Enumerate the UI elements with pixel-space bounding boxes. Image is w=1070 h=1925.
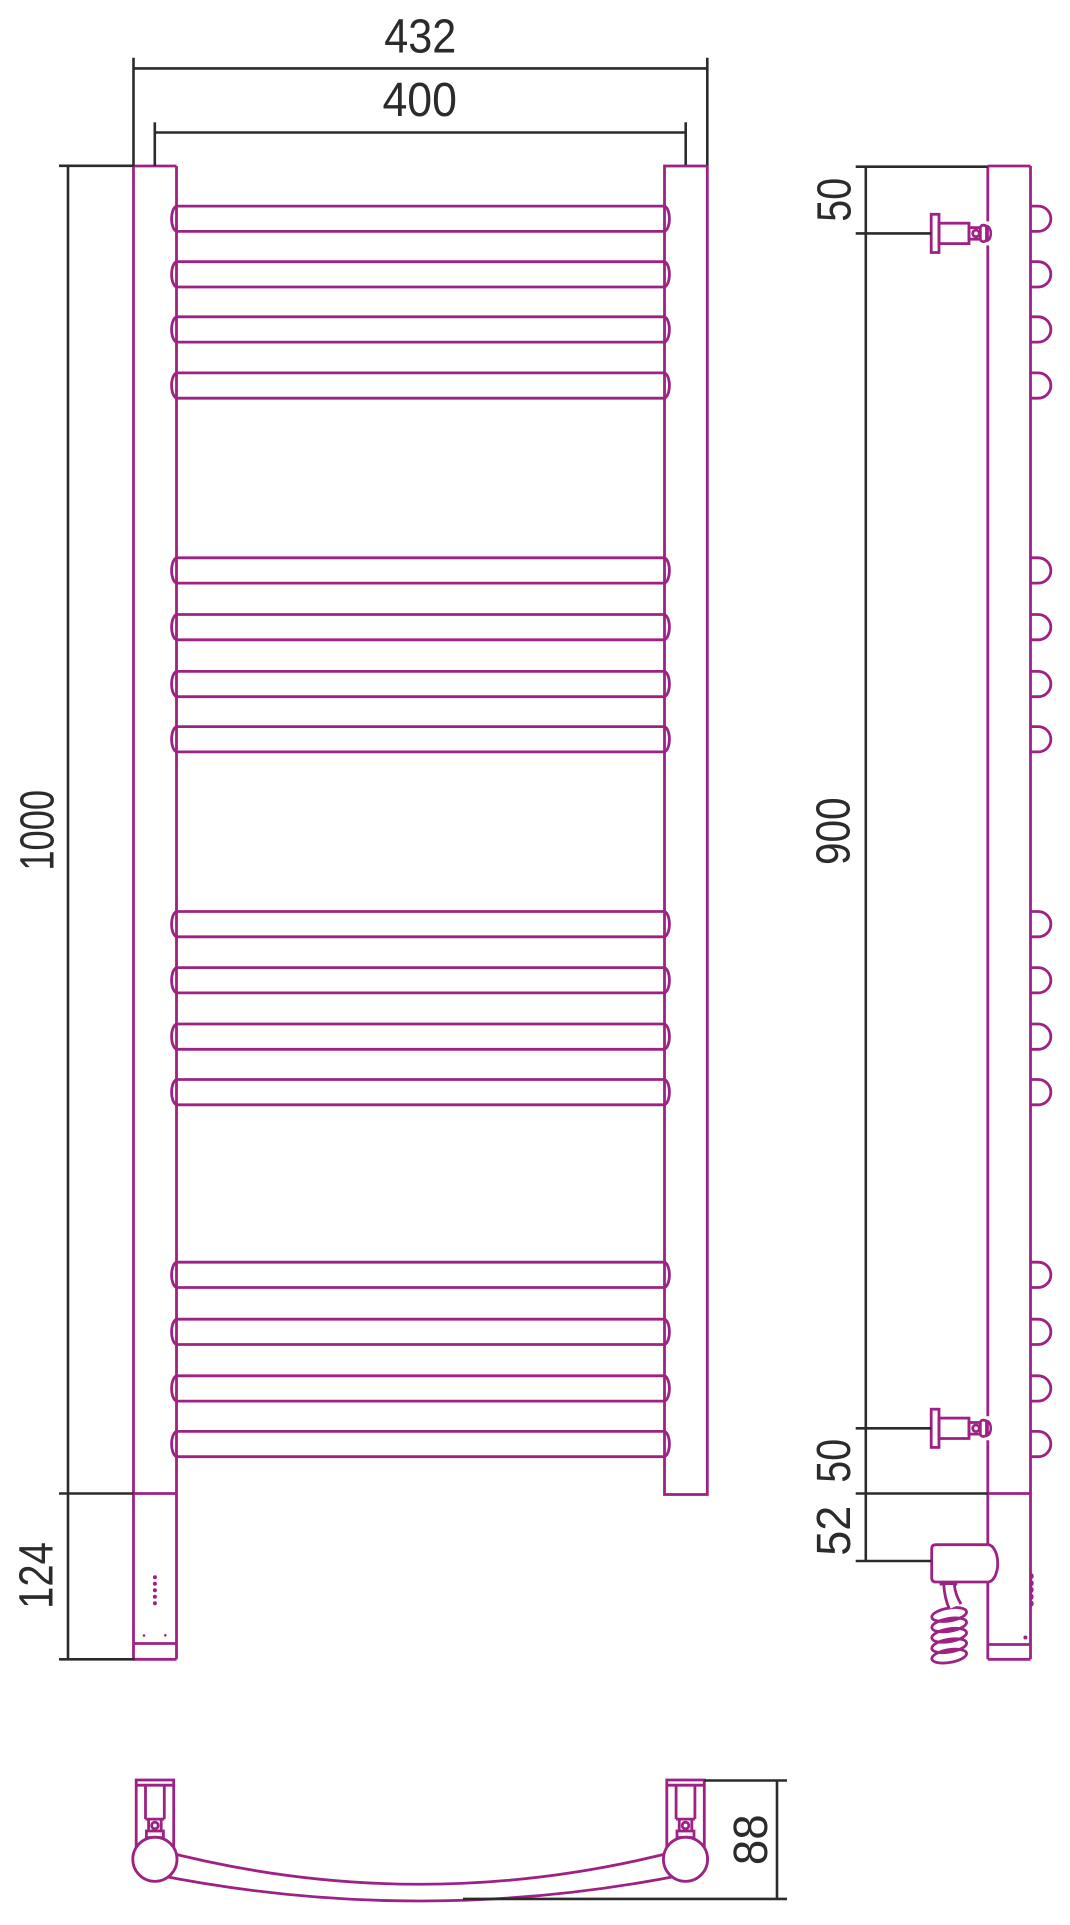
svg-text:124: 124 (10, 1542, 63, 1609)
svg-text:900: 900 (808, 797, 861, 865)
svg-text:400: 400 (382, 73, 456, 127)
svg-text:88: 88 (724, 1814, 777, 1865)
svg-text:50: 50 (808, 1439, 862, 1483)
svg-text:1000: 1000 (12, 790, 65, 871)
svg-text:50: 50 (808, 178, 862, 222)
svg-text:52: 52 (807, 1506, 861, 1556)
svg-text:432: 432 (384, 10, 456, 64)
